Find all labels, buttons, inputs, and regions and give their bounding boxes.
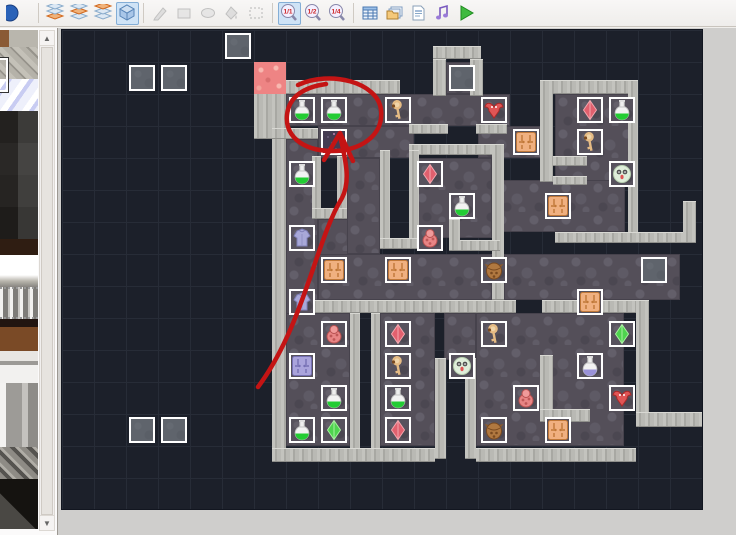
maze-wall (540, 80, 553, 182)
map-item-ghost[interactable] (609, 161, 635, 187)
map-item-rug-blue[interactable] (289, 353, 315, 379)
maze-wall (540, 355, 553, 411)
event-square[interactable] (449, 65, 475, 91)
svg-text:1/2: 1/2 (307, 9, 316, 16)
map-item-potion-green[interactable] (321, 97, 347, 123)
map-item-bat-red[interactable] (609, 385, 635, 411)
zoom-1-2-button[interactable]: 1/2 (302, 2, 325, 25)
audio-button[interactable] (431, 2, 454, 25)
maze-wall (312, 208, 347, 219)
partial-icon[interactable] (11, 2, 34, 25)
map-item-potion-green[interactable] (449, 193, 475, 219)
maze-wall (409, 144, 502, 155)
script-editor-button[interactable] (407, 2, 430, 25)
toolbar-separator (272, 3, 273, 23)
map-item-rug-orange[interactable] (513, 129, 539, 155)
maze-wall (286, 80, 400, 94)
palette-selected-tile (0, 58, 8, 92)
layer-2-button[interactable] (68, 2, 91, 25)
map-canvas-area[interactable] (58, 28, 736, 535)
map-item-key[interactable] (481, 321, 507, 347)
map-item-imp-pink[interactable] (513, 385, 539, 411)
tile-stone-partial[interactable] (0, 30, 38, 47)
materials-button[interactable] (383, 2, 406, 25)
maze-wall (540, 80, 638, 94)
palette-tiles[interactable] (0, 30, 38, 533)
maze-wall (553, 176, 587, 186)
toolbar-separator (143, 3, 144, 23)
tile-dark-brick-1[interactable] (0, 111, 38, 143)
map-item-crystal-red[interactable] (577, 97, 603, 123)
map-item-rug-orange[interactable] (545, 193, 571, 219)
map-item-potion-green[interactable] (289, 417, 315, 443)
maze-wall (272, 92, 286, 462)
flood-fill-button[interactable] (221, 2, 244, 25)
layer-1-button[interactable] (44, 2, 67, 25)
map-item-rug-orange[interactable] (385, 257, 411, 283)
tile-dark-brick-4[interactable] (0, 207, 38, 239)
map-item-rug-orange[interactable] (577, 289, 603, 315)
event-square[interactable] (225, 33, 251, 59)
maze-wall (683, 201, 696, 243)
tile-dark-brick-2[interactable] (0, 143, 38, 175)
map-item-key[interactable] (385, 353, 411, 379)
map-item-potion-green[interactable] (321, 385, 347, 411)
map-item-crystal-red[interactable] (385, 321, 411, 347)
map-editor-window: 1/11/21/4 ▲ ▼ (0, 0, 736, 535)
pencil-button[interactable] (149, 2, 172, 25)
maze-wall (254, 92, 273, 138)
playtest-button[interactable] (455, 2, 478, 25)
tile-shelf[interactable] (0, 319, 38, 351)
map-item-potion-green[interactable] (385, 385, 411, 411)
map-item-owl-brown[interactable] (481, 257, 507, 283)
map-item-key[interactable] (385, 97, 411, 123)
maze-wall (272, 448, 435, 462)
map-item-crystal-red[interactable] (385, 417, 411, 443)
maze-floor (347, 158, 381, 254)
maze-wall (476, 448, 636, 462)
map-item-potion-green[interactable] (289, 161, 315, 187)
map-item-ghost[interactable] (449, 353, 475, 379)
map-item-potion-blue[interactable] (577, 353, 603, 379)
database-button[interactable] (359, 2, 382, 25)
tile-white-block[interactable] (0, 255, 38, 287)
zoom-1-1-button[interactable]: 1/1 (278, 2, 301, 25)
maze-wall (433, 59, 446, 96)
palette-scrollbar-thumb[interactable] (41, 47, 53, 515)
maze-wall (435, 358, 446, 459)
select-button[interactable] (245, 2, 268, 25)
map-item-owl-brown[interactable] (481, 417, 507, 443)
painted-pink-tile[interactable] (254, 62, 286, 94)
event-layer-button[interactable] (116, 2, 139, 25)
maze-wall (350, 313, 360, 457)
event-square[interactable] (129, 65, 155, 91)
map-item-dark-tile[interactable] (321, 129, 347, 155)
map-item-imp-pink[interactable] (417, 225, 443, 251)
tile-dark-brick-3[interactable] (0, 175, 38, 207)
map-grid[interactable] (61, 29, 703, 510)
tile-dark-triangle[interactable] (0, 479, 38, 529)
maze-wall (449, 219, 460, 251)
ellipse-button[interactable] (197, 2, 220, 25)
event-square[interactable] (161, 65, 187, 91)
map-item-crystal-green[interactable] (321, 417, 347, 443)
event-square[interactable] (161, 417, 187, 443)
maze-wall (433, 46, 481, 59)
maze-wall (409, 124, 447, 134)
map-item-armor[interactable] (289, 289, 315, 315)
maze-wall (380, 238, 418, 249)
svg-text:1/1: 1/1 (283, 9, 292, 16)
maze-wall (553, 156, 587, 166)
map-item-crystal-green[interactable] (609, 321, 635, 347)
scroll-down-icon[interactable]: ▼ (40, 515, 54, 530)
maze-wall (636, 300, 649, 414)
scroll-up-icon[interactable]: ▲ (40, 31, 54, 46)
layer-3-button[interactable] (92, 2, 115, 25)
toolbar-separator (38, 3, 39, 23)
toolbar: 1/11/21/4 (0, 0, 736, 27)
tile-bars[interactable] (0, 287, 38, 319)
zoom-1-4-button[interactable]: 1/4 (326, 2, 349, 25)
map-item-crystal-red[interactable] (417, 161, 443, 187)
maze-wall (272, 128, 318, 139)
map-item-armor[interactable] (289, 225, 315, 251)
tile-pillar-shaft[interactable] (0, 383, 38, 447)
map-item-imp-pink[interactable] (321, 321, 347, 347)
tile-pillar-top[interactable] (0, 351, 38, 383)
tile-ramp[interactable] (0, 447, 38, 479)
map-item-bat-red[interactable] (481, 97, 507, 123)
event-square[interactable] (129, 417, 155, 443)
map-item-key[interactable] (577, 129, 603, 155)
tileset-palette[interactable]: ▲ ▼ (0, 28, 58, 535)
maze-wall (476, 124, 506, 134)
tile-brown-strip[interactable] (0, 239, 38, 255)
maze-wall (555, 232, 683, 243)
map-item-rug-orange[interactable] (321, 257, 347, 283)
maze-wall (371, 313, 381, 457)
maze-wall (636, 412, 702, 426)
map-item-potion-green[interactable] (289, 97, 315, 123)
svg-text:1/4: 1/4 (331, 9, 340, 16)
map-item-potion-green[interactable] (609, 97, 635, 123)
map-item-rug-orange[interactable] (545, 417, 571, 443)
maze-wall (302, 300, 516, 313)
maze-wall (380, 150, 390, 249)
rectangle-button[interactable] (173, 2, 196, 25)
palette-scrollbar[interactable]: ▲ ▼ (39, 30, 55, 531)
toolbar-separator (353, 3, 354, 23)
event-square[interactable] (641, 257, 667, 283)
